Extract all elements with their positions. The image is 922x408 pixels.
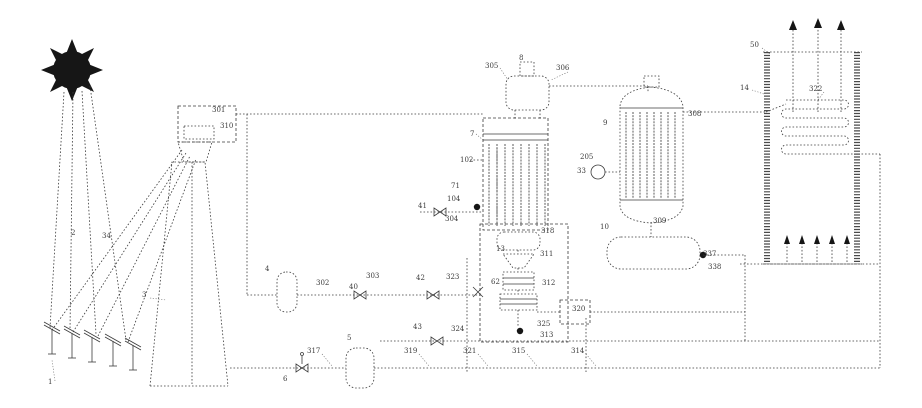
ref-label-323: 323: [446, 273, 459, 281]
ref-label-71: 71: [451, 182, 460, 190]
ref-label-311: 311: [540, 250, 553, 258]
ref-label-318: 318: [541, 227, 554, 235]
ref-label-320: 320: [572, 305, 585, 313]
ref-label-313: 313: [540, 331, 553, 339]
ref-label-5: 5: [347, 334, 351, 342]
ref-label-302: 302: [316, 279, 329, 287]
ref-label-104: 104: [447, 195, 460, 203]
ref-label-337: 337: [703, 250, 716, 258]
ref-label-205: 205: [580, 153, 593, 161]
ref-label-43: 43: [413, 323, 422, 331]
ref-label-6: 6: [283, 375, 287, 383]
ref-label-309: 309: [653, 217, 666, 225]
ref-label-306: 306: [556, 64, 569, 72]
ref-label-62: 62: [491, 278, 500, 286]
ref-label-33: 33: [577, 167, 586, 175]
ref-label-325: 325: [537, 320, 550, 328]
ref-label-40: 40: [349, 283, 358, 291]
ref-label-41: 41: [418, 202, 427, 210]
patent-figure: 1234330131043024030342323830530671027110…: [0, 0, 922, 408]
ref-label-301: 301: [212, 106, 225, 114]
reference-labels-layer: 1234330131043024030342323830530671027110…: [0, 0, 922, 408]
ref-label-315: 315: [512, 347, 525, 355]
ref-label-4: 4: [265, 265, 269, 273]
ref-label-34: 34: [102, 232, 111, 240]
ref-label-102: 102: [460, 156, 473, 164]
ref-label-338: 338: [708, 263, 721, 271]
ref-label-14: 14: [740, 84, 749, 92]
ref-label-8: 8: [519, 54, 523, 62]
ref-label-308: 308: [688, 110, 701, 118]
ref-label-312: 312: [542, 279, 555, 287]
ref-label-50: 50: [750, 41, 759, 49]
ref-label-7: 7: [470, 130, 474, 138]
ref-label-305: 305: [485, 62, 498, 70]
ref-label-9: 9: [603, 119, 607, 127]
ref-label-303: 303: [366, 272, 379, 280]
ref-label-310: 310: [220, 122, 233, 130]
ref-label-3: 3: [142, 291, 146, 299]
ref-label-1: 1: [48, 378, 52, 386]
ref-label-2: 2: [71, 229, 75, 237]
ref-label-304: 304: [445, 215, 458, 223]
ref-label-13: 13: [496, 245, 505, 253]
ref-label-317: 317: [307, 347, 320, 355]
ref-label-322: 322: [809, 85, 822, 93]
ref-label-42: 42: [416, 274, 425, 282]
ref-label-324: 324: [451, 325, 464, 333]
ref-label-10: 10: [600, 223, 609, 231]
ref-label-321: 321: [463, 347, 476, 355]
ref-label-314: 314: [571, 347, 584, 355]
ref-label-319: 319: [404, 347, 417, 355]
